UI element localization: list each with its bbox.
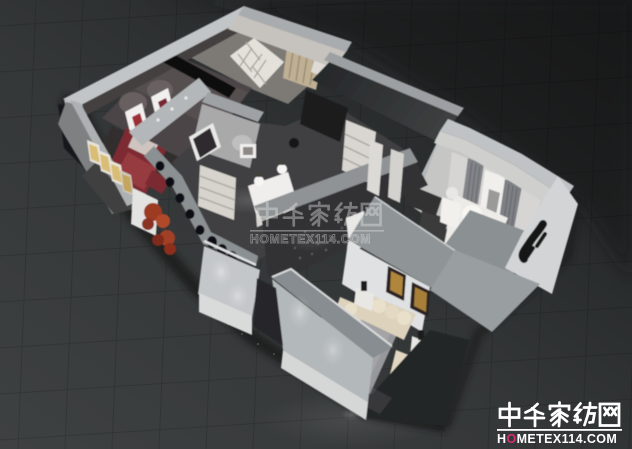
svg-text:HOMETEX114.COM: HOMETEX114.COM — [250, 232, 371, 246]
svg-text:HOMETEX114.COM: HOMETEX114.COM — [497, 432, 617, 446]
